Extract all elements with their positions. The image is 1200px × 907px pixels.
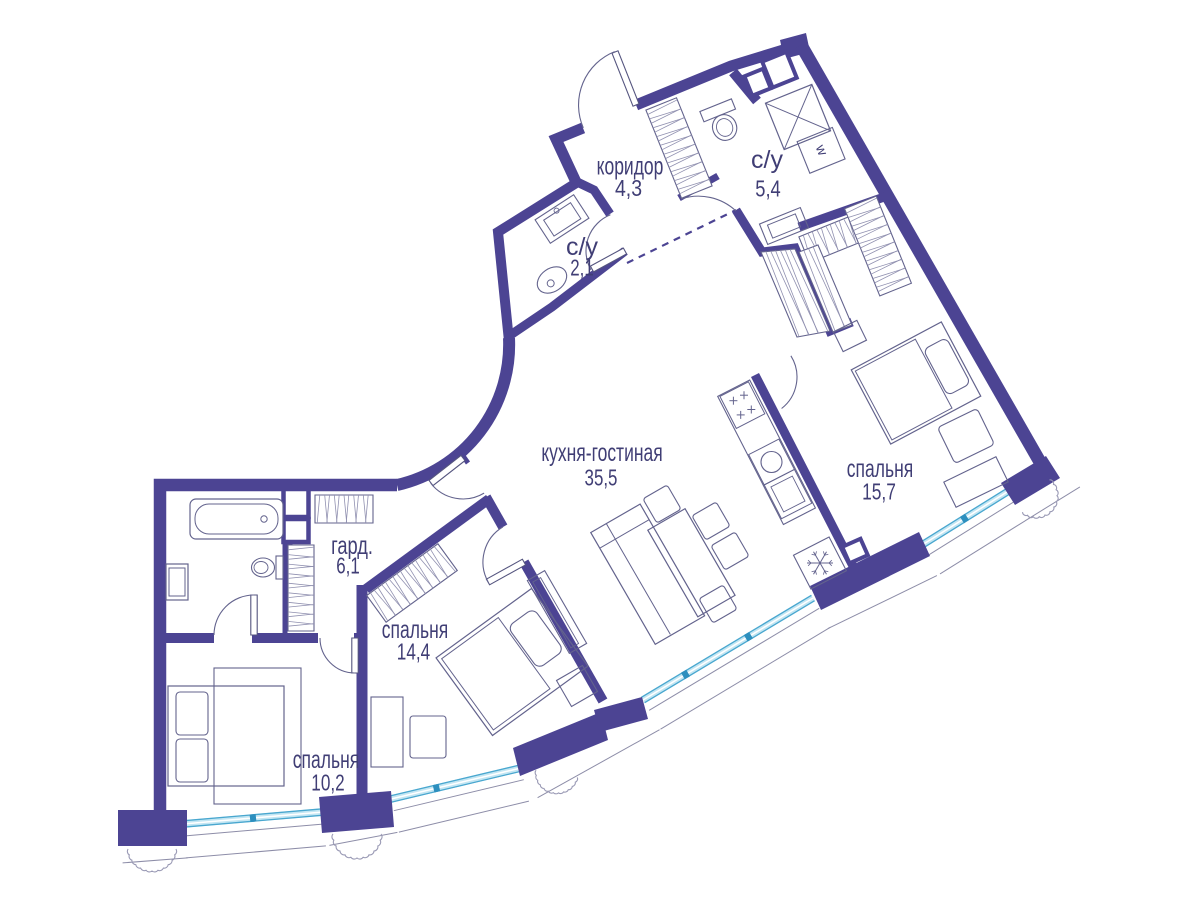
svg-text:4,3: 4,3 [615,174,642,201]
svg-text:15,7: 15,7 [862,479,896,505]
svg-text:35,5: 35,5 [585,465,618,491]
svg-text:с/у: с/у [751,146,783,174]
svg-text:5,4: 5,4 [755,176,781,202]
svg-text:10,2: 10,2 [311,770,344,796]
svg-text:кухня-гостиная: кухня-гостиная [541,438,662,467]
svg-text:6,1: 6,1 [336,553,360,579]
svg-text:14,4: 14,4 [397,639,430,665]
svg-text:2,1: 2,1 [570,255,594,281]
